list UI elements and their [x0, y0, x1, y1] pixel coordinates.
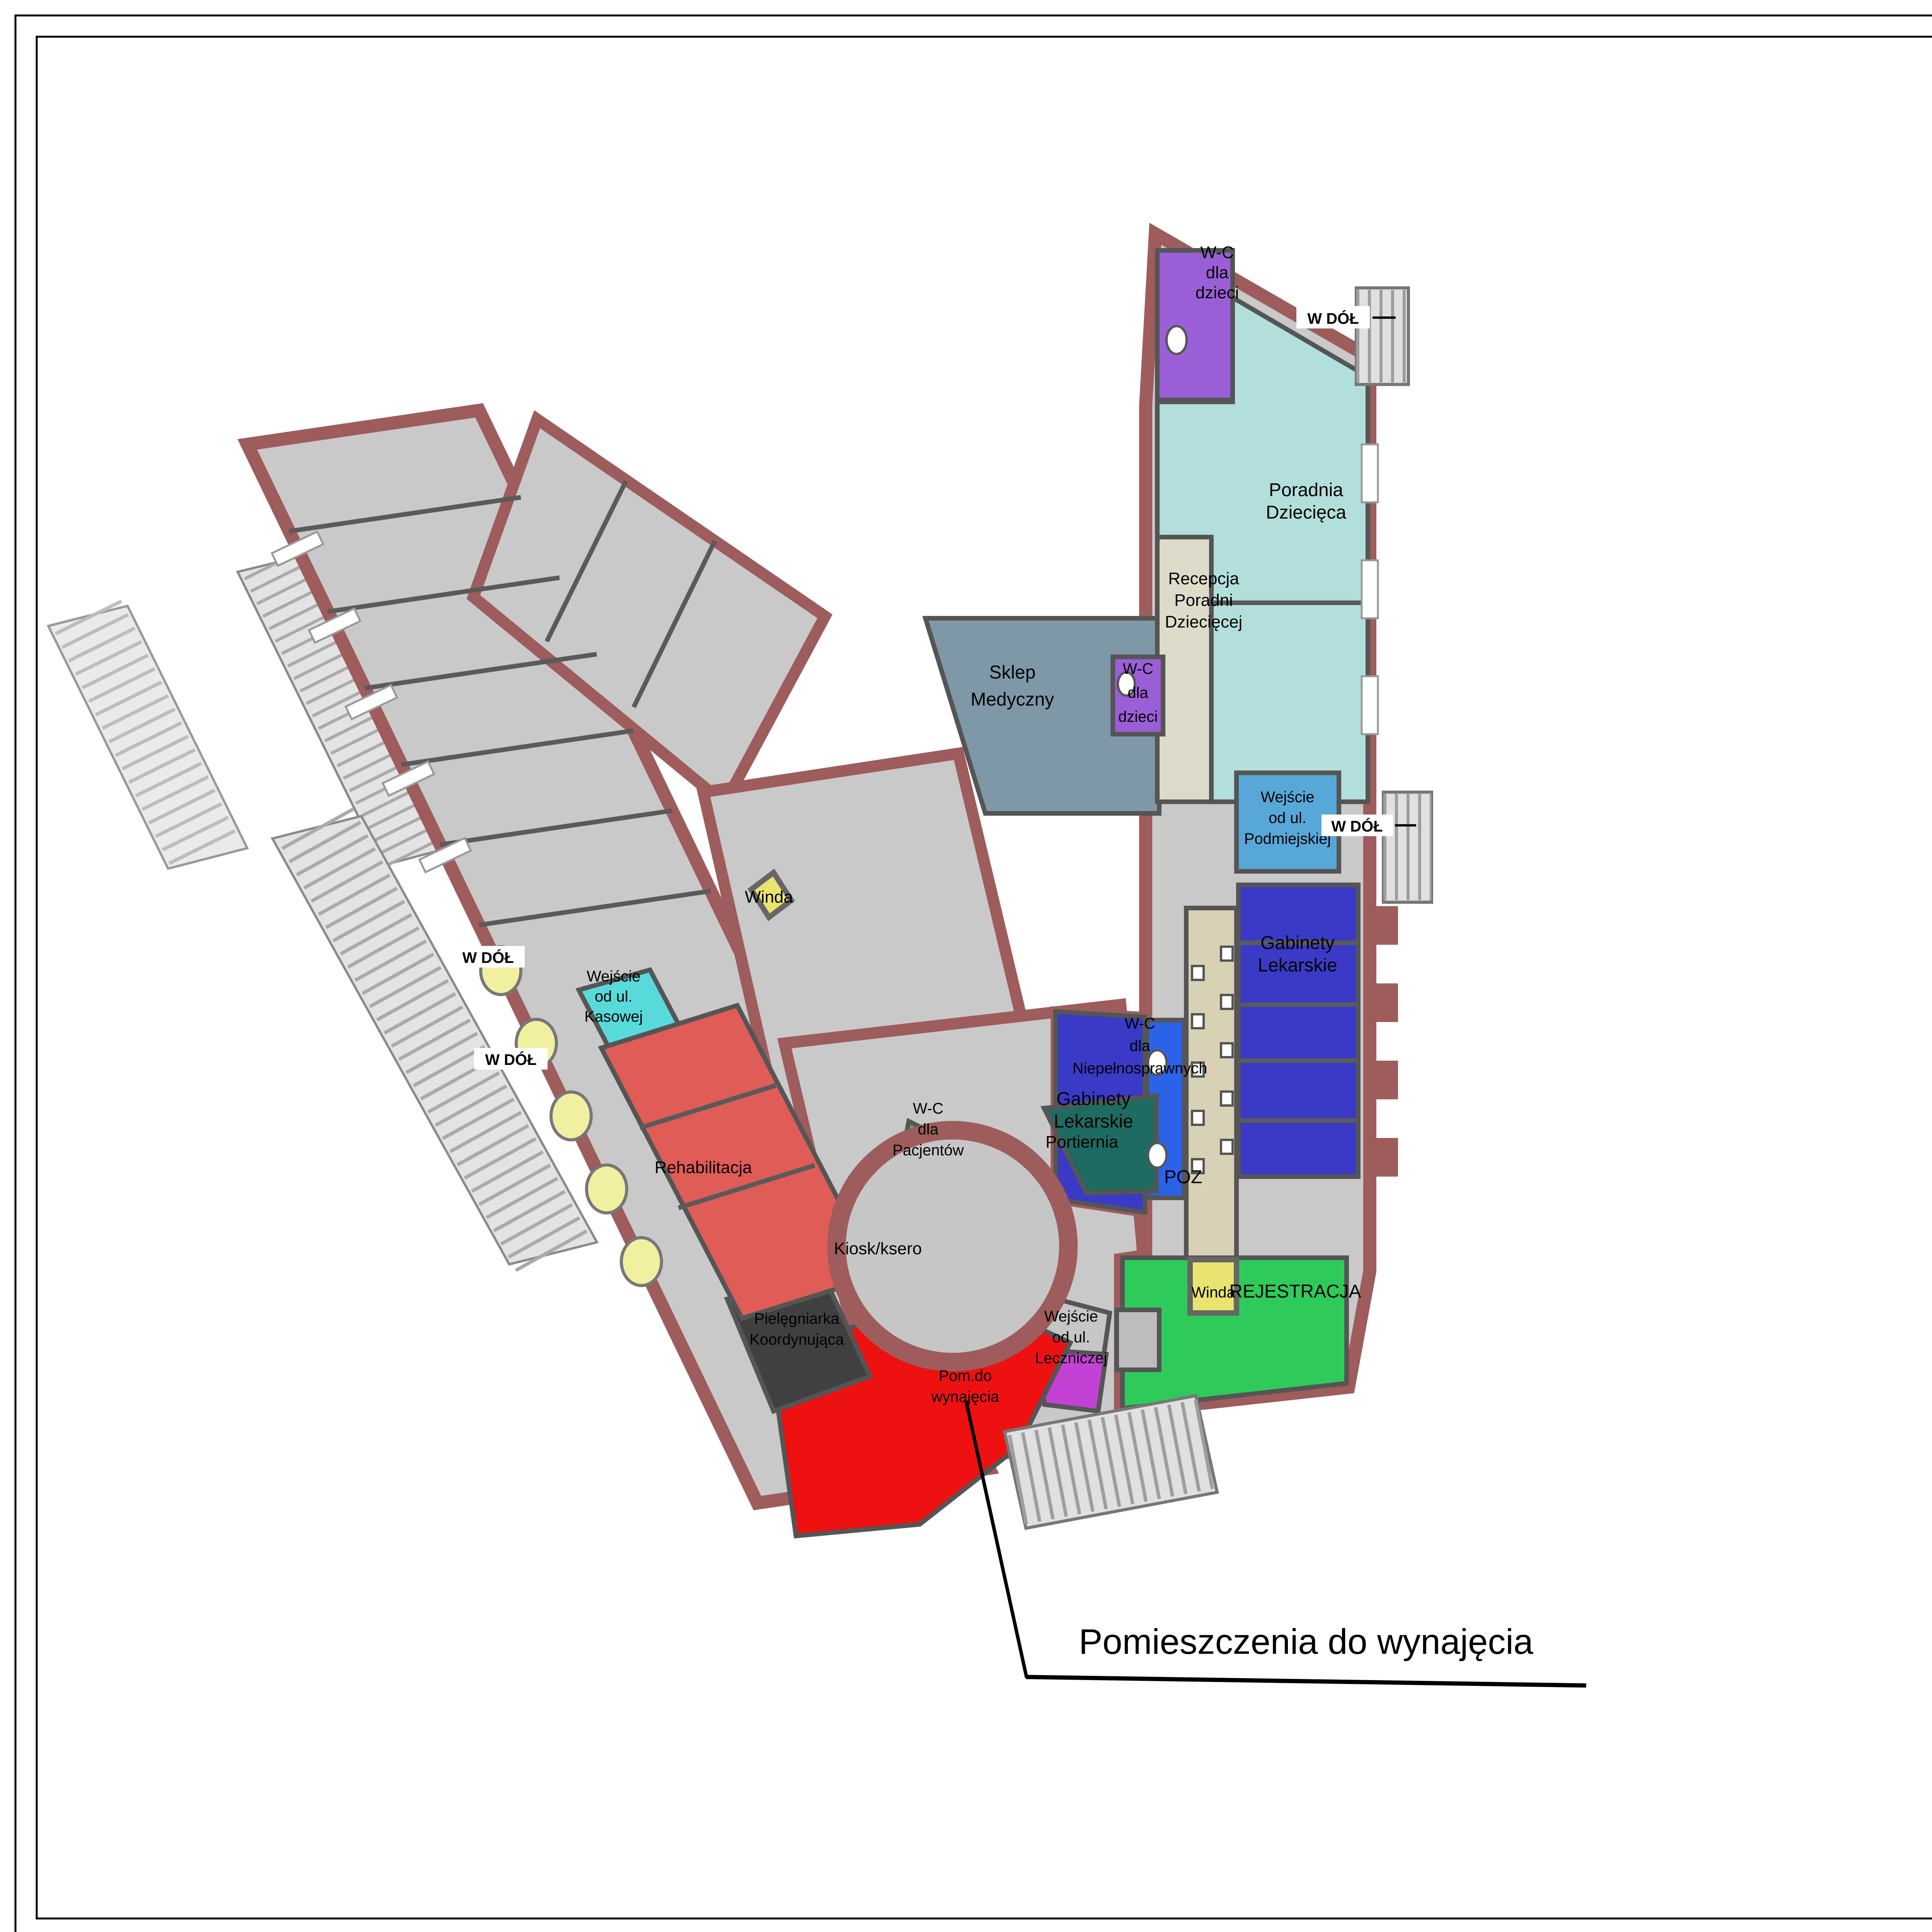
- label-wejscie-kasowa: Wejście: [587, 968, 640, 985]
- hatched-area: [48, 606, 247, 869]
- label-kiosk: Kiosk/ksero: [834, 1239, 922, 1258]
- svg-text:dla: dla: [1128, 684, 1148, 701]
- pilaster: [1371, 983, 1398, 1022]
- svg-text:od ul.: od ul.: [1052, 1329, 1090, 1346]
- label-sklep: Sklep: [989, 662, 1036, 683]
- label-wejscie-podmiejska: Wejście: [1260, 789, 1314, 806]
- label-rejestracja: REJESTRACJA: [1229, 1281, 1361, 1302]
- label-wejscie-lecznicza: Wejście: [1044, 1308, 1098, 1325]
- label-pielegniarka: Pielęgniarka: [754, 1310, 840, 1327]
- annotation-text: Pomieszczenia do wynajęcia: [1079, 1622, 1534, 1662]
- svg-text:Dziecięca: Dziecięca: [1266, 502, 1346, 523]
- svg-text:dzieci: dzieci: [1196, 283, 1239, 302]
- svg-text:W DÓŁ: W DÓŁ: [462, 949, 514, 966]
- svg-text:W DÓŁ: W DÓŁ: [485, 1051, 536, 1068]
- label-rehabilitacja: Rehabilitacja: [655, 1158, 752, 1177]
- closet-gray: [1117, 1310, 1159, 1370]
- svg-text:Poradni: Poradni: [1174, 591, 1233, 610]
- toilet-icon: [1167, 326, 1187, 354]
- label-poradnia: Poradnia: [1269, 480, 1343, 500]
- svg-text:od ul.: od ul.: [1269, 810, 1306, 827]
- svg-text:dla: dla: [1206, 263, 1229, 282]
- label-wc-dzieci-mid: W-C: [1122, 660, 1153, 677]
- pilaster: [1371, 1138, 1398, 1177]
- stair-label-left-1: W DÓŁ: [451, 946, 525, 968]
- pilaster: [1371, 906, 1398, 945]
- svg-text:Niepełnosprawnych: Niepełnosprawnych: [1072, 1060, 1207, 1077]
- label-wc-pacjentow: W-C: [913, 1100, 943, 1117]
- label-wc-niepelnosprawnych: W-C: [1124, 1015, 1155, 1032]
- svg-text:Pacjentów: Pacjentów: [893, 1142, 964, 1159]
- label-poz: POZ: [1164, 1167, 1202, 1187]
- svg-text:Koordynująca: Koordynująca: [750, 1331, 844, 1348]
- svg-text:dzieci: dzieci: [1118, 708, 1158, 725]
- stair-label-left-2: W DÓŁ: [474, 1048, 548, 1070]
- label-recepcja: Recepcja: [1168, 569, 1239, 588]
- svg-text:Podmiejskiej: Podmiejskiej: [1244, 830, 1331, 847]
- svg-text:Lekarskie: Lekarskie: [1258, 955, 1337, 976]
- svg-text:Medyczny: Medyczny: [971, 689, 1054, 710]
- label-portiernia: Portiernia: [1046, 1133, 1119, 1151]
- svg-text:W DÓŁ: W DÓŁ: [1307, 310, 1359, 327]
- svg-text:Leczniczej: Leczniczej: [1035, 1350, 1107, 1367]
- label-winda-central: Winda: [745, 888, 793, 906]
- pilaster: [1371, 1061, 1398, 1099]
- svg-text:wynajęcia: wynajęcia: [931, 1388, 999, 1405]
- svg-text:Lekarskie: Lekarskie: [1054, 1111, 1133, 1132]
- svg-text:dla: dla: [1129, 1037, 1150, 1054]
- svg-text:od ul.: od ul.: [595, 988, 633, 1005]
- svg-text:W DÓŁ: W DÓŁ: [1331, 817, 1383, 835]
- floor-plan-sheet: W-C dla dzieci W DÓŁ Poradnia Dziecięca …: [0, 0, 1932, 1932]
- svg-text:Kasowej: Kasowej: [584, 1008, 643, 1025]
- label-pom-do-wynajecia: Pom.do: [939, 1367, 992, 1384]
- svg-text:Dziecięcej: Dziecięcej: [1165, 612, 1243, 631]
- svg-text:dla: dla: [918, 1121, 939, 1138]
- room-gabinety-lekarskie-right: [1238, 885, 1358, 1177]
- label-gabinety-right: Gabinety: [1260, 933, 1335, 953]
- label-wc-dzieci-top: W-C: [1200, 243, 1234, 262]
- toilet-icon: [1148, 1143, 1167, 1168]
- annotation-underline: [1026, 1677, 1586, 1685]
- label-gabinety-left: Gabinety: [1056, 1089, 1131, 1109]
